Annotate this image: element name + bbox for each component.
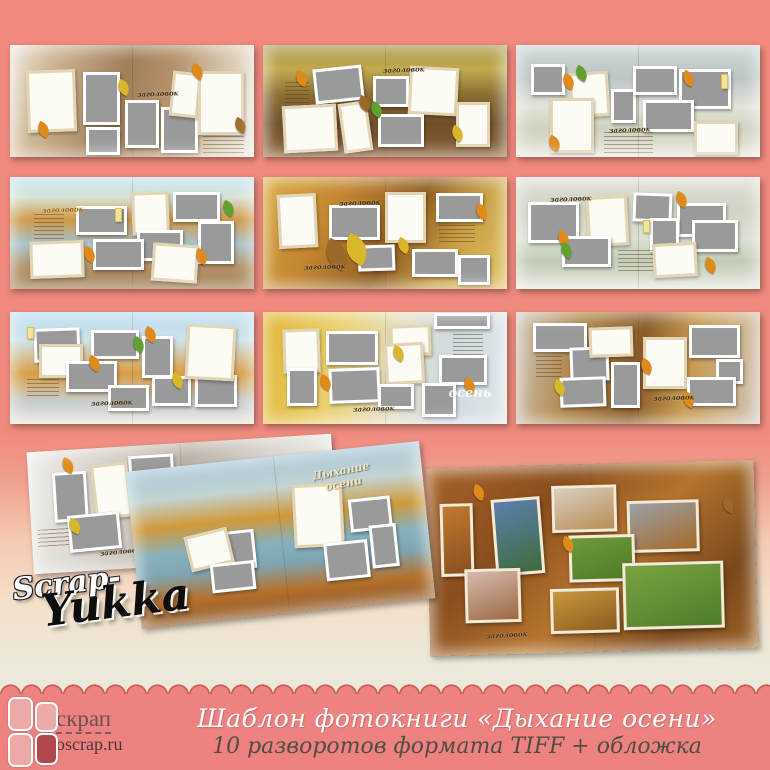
photo-frame <box>150 243 199 284</box>
photo-placeholder <box>209 560 256 593</box>
photo-placeholder <box>93 239 144 270</box>
photo-placeholder <box>91 330 140 359</box>
logo-text-block: скрап oscrap.ru <box>56 707 122 756</box>
leaf-icon <box>220 199 237 216</box>
photo-frame <box>276 193 318 249</box>
spread-caption: заголовок <box>652 392 694 402</box>
photo-frame <box>184 324 236 381</box>
photo-placeholder <box>125 100 159 148</box>
spread-preview-1: заголовок <box>10 45 254 157</box>
photo-placeholder <box>692 220 738 252</box>
photo-placeholder <box>86 127 120 155</box>
journaling-lines <box>37 528 69 548</box>
photo-frame <box>281 104 337 154</box>
photo-frame <box>385 192 426 244</box>
photo-frame <box>694 121 738 155</box>
spread-caption: заголовок <box>42 204 84 214</box>
photo-placeholder <box>434 313 490 329</box>
photo-placeholder <box>689 325 740 357</box>
photo-frame <box>282 328 320 373</box>
sample-photo <box>440 503 475 577</box>
sample-photo <box>551 484 618 533</box>
sample-photo <box>627 499 701 553</box>
photo-placeholder <box>142 336 174 379</box>
banner-title: Шаблон фотокниги «Дыхание осени» <box>158 704 756 733</box>
example-spread-preview: заголовок <box>426 460 759 657</box>
bottom-banner: скрап oscrap.ru Шаблон фотокниги «Дыхани… <box>0 693 770 770</box>
photobook-promo-poster: заголовок заголовок заголовок заголовок … <box>0 0 770 770</box>
spread-preview-6: заголовок <box>516 177 760 289</box>
photo-placeholder <box>412 249 458 277</box>
logo-tile <box>8 733 33 767</box>
photo-frame <box>29 240 84 279</box>
spread-caption: Дыхание осени <box>311 460 372 496</box>
leaf-icon <box>470 484 487 501</box>
photo-placeholder <box>369 523 400 568</box>
journaling-lines <box>536 356 563 377</box>
photo-placeholder <box>611 89 635 124</box>
spread-caption: заголовок <box>90 398 132 408</box>
photo-placeholder <box>326 331 377 365</box>
journaling-lines <box>203 136 244 153</box>
photo-placeholder <box>313 65 365 105</box>
spread-preview-4: заголовок <box>10 177 254 289</box>
logo-tile <box>8 697 33 731</box>
tag-ribbon <box>721 74 728 89</box>
leaf-icon <box>720 496 737 513</box>
photo-placeholder <box>287 368 316 406</box>
banner-subtitle: 10 разворотов формата TIFF + обложка <box>158 734 756 759</box>
sample-photo <box>550 587 620 634</box>
photo-placeholder <box>559 376 606 408</box>
scallop-edge <box>0 682 770 694</box>
photo-frame <box>26 69 77 132</box>
spread-preview-2: заголовок <box>263 45 507 157</box>
journaling-lines <box>453 334 482 354</box>
spread-preview-9: заголовок <box>516 312 760 424</box>
spread-preview-8: заголовокосень <box>263 312 507 424</box>
sample-photo <box>622 560 725 630</box>
spread-caption: заголовок <box>353 403 395 413</box>
sample-photo <box>464 567 521 623</box>
spread-caption: заголовок <box>485 629 527 641</box>
photo-placeholder <box>611 362 640 408</box>
spread-caption: заголовок <box>550 193 592 203</box>
spread-caption: заголовок <box>382 64 424 74</box>
tag-ribbon <box>643 220 650 233</box>
spread-caption: заголовок <box>609 124 651 134</box>
spread-preview-3: заголовок <box>516 45 760 157</box>
photo-placeholder <box>173 192 219 222</box>
journaling-lines <box>604 132 653 152</box>
spread-caption: заголовок <box>338 198 380 208</box>
journaling-lines <box>618 250 652 271</box>
spread-caption: осень <box>448 386 491 401</box>
photo-frame <box>652 242 698 278</box>
spread-preview-5: заголовокзаголовок <box>263 177 507 289</box>
journaling-lines <box>439 225 476 245</box>
sample-photo <box>490 496 545 577</box>
spread-preview-7: заголовок <box>10 312 254 424</box>
photo-frame <box>589 326 634 358</box>
tag-ribbon <box>115 208 122 221</box>
photo-placeholder <box>531 64 565 95</box>
logo-name: скрап <box>56 707 111 734</box>
photo-placeholder <box>373 76 410 106</box>
logo-url: oscrap.ru <box>56 734 122 756</box>
oscrap-logo: скрап oscrap.ru <box>8 697 158 767</box>
photo-placeholder <box>378 114 424 146</box>
photo-placeholder <box>328 367 380 403</box>
spread-caption: заголовок <box>137 88 179 98</box>
journaling-lines <box>27 379 59 398</box>
photo-placeholder <box>643 100 694 132</box>
photo-placeholder <box>439 355 488 385</box>
journaling-lines <box>285 82 309 106</box>
tag-ribbon <box>27 327 34 339</box>
photo-placeholder <box>633 66 677 95</box>
photo-placeholder <box>323 539 371 581</box>
banner-text-block: Шаблон фотокниги «Дыхание осени» 10 разв… <box>158 704 770 759</box>
spread-caption: заголовок <box>304 261 346 271</box>
photo-placeholder <box>458 255 490 284</box>
photo-frame <box>131 191 169 235</box>
leaf-icon <box>702 257 719 274</box>
logo-tiles-icon <box>8 697 62 767</box>
journaling-lines <box>34 214 63 241</box>
logo-tile <box>35 702 58 732</box>
photo-frame <box>384 342 425 385</box>
photo-placeholder <box>152 376 191 406</box>
photo-frame <box>408 66 459 117</box>
photo-placeholder <box>83 72 120 125</box>
logo-tile <box>35 733 58 765</box>
